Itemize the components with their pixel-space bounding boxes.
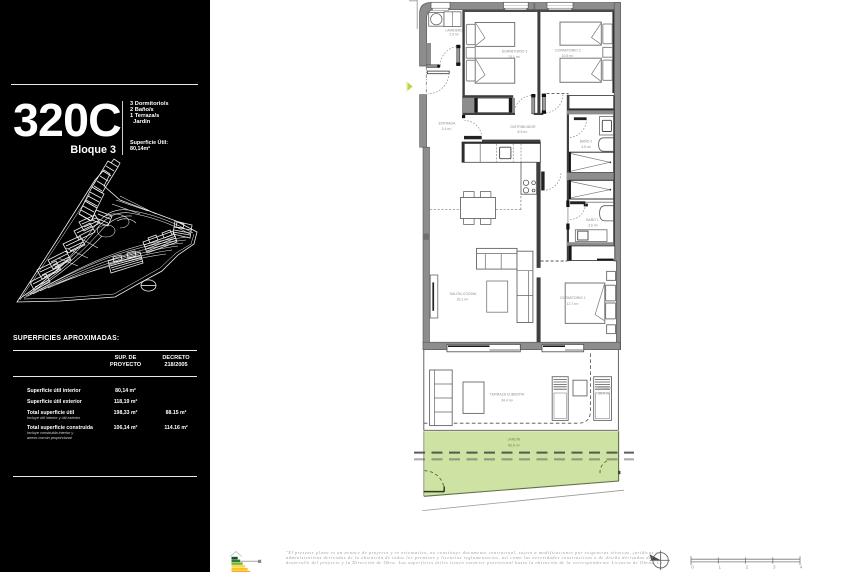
svg-text:ENTRADA: ENTRADA [439,122,456,126]
svg-text:3.6 m²: 3.6 m² [588,223,598,227]
svg-text:10.0 m²: 10.0 m² [598,392,611,396]
svg-text:BAÑO 2: BAÑO 2 [580,139,593,144]
svg-text:34.4 m²: 34.4 m² [501,398,514,402]
svg-text:DORMITORIO 1: DORMITORIO 1 [560,296,586,300]
svg-text:2: 2 [746,564,749,569]
svg-text:TERRAZA: TERRAZA [596,386,613,390]
svg-text:10.5 m²: 10.5 m² [562,54,575,58]
svg-text:12.7 m²: 12.7 m² [567,302,580,306]
svg-text:DISTRIBUIDOR: DISTRIBUIDOR [510,125,536,129]
svg-text:3: 3 [773,564,776,569]
svg-text:BAÑO 1: BAÑO 1 [586,217,599,222]
svg-text:4: 4 [800,564,803,569]
svg-text:TERRAZA CUBIERTA: TERRAZA CUBIERTA [490,392,525,396]
svg-text:2.9 m²: 2.9 m² [449,32,459,36]
svg-text:DORMITORIO 2: DORMITORIO 2 [555,49,581,53]
svg-text:JARDÍN: JARDÍN [508,438,521,442]
svg-text:86.8 m²: 86.8 m² [508,443,521,447]
svg-text:DORMITORIO 3: DORMITORIO 3 [502,50,528,54]
svg-text:0: 0 [691,564,694,569]
svg-text:3.5 m²: 3.5 m² [581,145,591,149]
svg-text:29.1 m²: 29.1 m² [457,298,470,302]
svg-text:SALÓN-COCINA: SALÓN-COCINA [450,291,477,296]
svg-text:1: 1 [719,564,722,569]
svg-text:3.4 m²: 3.4 m² [442,127,453,131]
svg-text:8.5 m²: 8.5 m² [518,130,529,134]
svg-text:13.1 m²: 13.1 m² [508,55,521,59]
